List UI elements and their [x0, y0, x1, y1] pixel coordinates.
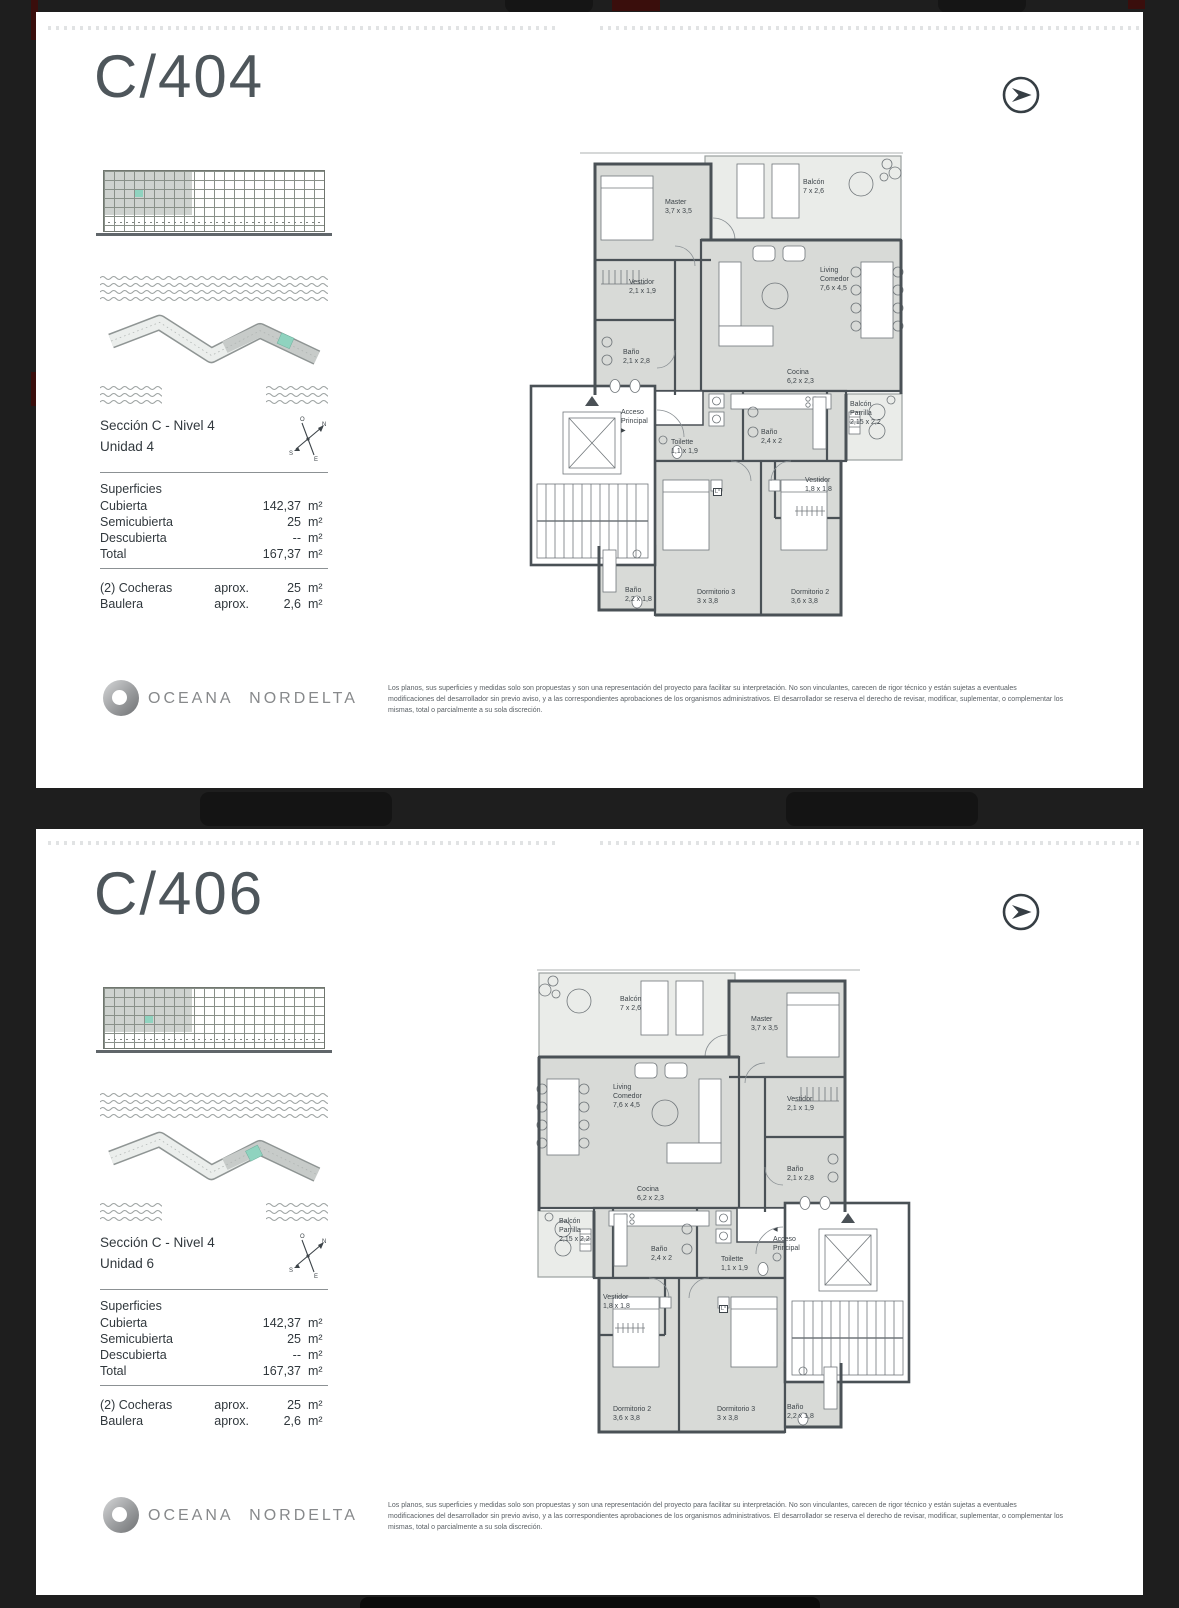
brand-name: OCEANA NORDELTA	[148, 1507, 358, 1525]
page-stack-tab[interactable]	[786, 792, 978, 826]
room-dims: 3,7 x 3,5	[665, 207, 692, 216]
room-label-cocina: Cocina6,2 x 2,3	[637, 1185, 664, 1203]
section-unit: Unidad 6	[100, 1253, 215, 1274]
room-name: Master	[751, 1015, 778, 1024]
room-dims: 1,1 x 1,9	[671, 447, 698, 456]
room-dims: 2,1 x 1,9	[629, 287, 656, 296]
room-name: Baño	[625, 586, 652, 595]
extras-row: Bauleraaprox.2,6m²	[100, 597, 328, 612]
room-dims: 2,2 x 1,8	[625, 595, 652, 604]
room-label-toilette: Toilette1,1 x 1,9	[721, 1255, 748, 1273]
room-dims: 2,2 x 1,8	[787, 1412, 814, 1421]
room-dims: 6,2 x 2,3	[787, 377, 814, 386]
room-dims: 7 x 2,6	[803, 187, 824, 196]
room-name: Cocina	[787, 368, 814, 377]
room-label-bano3: Baño2,2 x 1,8	[787, 1403, 814, 1421]
room-label-dorm2: Dormitorio 23,6 x 3,8	[613, 1405, 651, 1423]
room-label-bano3: Baño2,2 x 1,8	[625, 586, 652, 604]
building-elevation-diagram	[103, 987, 325, 1049]
room-label-dorm3: Dormitorio 33 x 3,8	[697, 588, 735, 606]
superficies-row: Cubierta142,37m²	[100, 499, 328, 514]
laundry-label: L°	[719, 1305, 728, 1313]
divider	[100, 472, 328, 473]
room-dims: 2,4 x 2	[761, 437, 782, 446]
stacked-page-edge	[600, 26, 1140, 30]
water-waves-small	[100, 1202, 162, 1224]
room-dims: 2,1 x 2,8	[623, 357, 650, 366]
small-waves-row	[100, 385, 328, 407]
room-label-parrilla: Balcón Parrilla2,15 x 2,2	[850, 400, 882, 427]
room-label-cocina: Cocina6,2 x 2,3	[787, 368, 814, 386]
water-waves-graphic	[100, 1092, 328, 1120]
flipbook-viewer: C/404	[0, 0, 1179, 1608]
page-c404: C/404	[36, 12, 1143, 788]
room-label-toilette: Toilette1,1 x 1,9	[671, 438, 698, 456]
page-title: C/404	[94, 42, 264, 111]
room-name: Vestidor	[603, 1293, 630, 1302]
section-level: Sección C - Nivel 4	[100, 1232, 215, 1253]
section-level: Sección C - Nivel 4	[100, 415, 215, 436]
room-dims: 2,15 x 2,2	[559, 1235, 591, 1244]
room-label-master: Master3,7 x 3,5	[751, 1015, 778, 1033]
extras-row: Bauleraaprox.2,6m²	[100, 1414, 328, 1429]
room-name: Baño	[787, 1403, 814, 1412]
building-elevation-diagram	[103, 170, 325, 232]
room-name: Baño	[623, 348, 650, 357]
room-label-dorm3: Dormitorio 33 x 3,8	[717, 1405, 755, 1423]
acceso-arrow-icon: ◀	[773, 1227, 778, 1233]
water-waves-small	[266, 385, 328, 407]
superficies-row-total: Total167,37m²	[100, 547, 328, 562]
room-dims: 3,7 x 3,5	[751, 1024, 778, 1033]
room-dims: 3 x 3,8	[697, 597, 735, 606]
room-label-acceso: Acceso Principal▶	[621, 408, 665, 436]
brand-name: OCEANA NORDELTA	[148, 690, 358, 708]
water-waves-small	[266, 1202, 328, 1224]
arrow-right-icon	[1000, 891, 1042, 933]
page-title: C/406	[94, 859, 264, 928]
room-name: Balcón	[620, 995, 641, 1004]
room-name: Vestidor	[629, 278, 656, 287]
superficies-row: Semicubierta25m²	[100, 1332, 328, 1347]
superficies-row: Cubierta142,37m²	[100, 1316, 328, 1331]
floor-plan: Master3,7 x 3,5 Balcón7 x 2,6 Living Com…	[525, 150, 915, 630]
room-dims: 6,2 x 2,3	[637, 1194, 664, 1203]
svg-text:N: N	[322, 1239, 326, 1245]
room-name: Dormitorio 3	[697, 588, 735, 597]
room-label-vestidor2: Vestidor1,8 x 1,8	[805, 476, 832, 494]
room-label-balcon: Balcón7 x 2,6	[803, 178, 824, 196]
svg-text:E: E	[314, 1274, 318, 1278]
superficies-row: Semicubierta25m²	[100, 515, 328, 530]
section-info: Sección C - Nivel 4 Unidad 4	[100, 415, 215, 461]
room-dims: 2,15 x 2,2	[850, 418, 882, 427]
svg-text:E: E	[314, 457, 318, 461]
room-dims: 3,6 x 3,8	[791, 597, 829, 606]
room-dims: 2,4 x 2	[651, 1254, 672, 1263]
room-name: Baño	[761, 428, 782, 437]
water-waves-graphic	[100, 275, 328, 303]
divider	[100, 568, 328, 569]
compass-icon: O N S E	[288, 1232, 328, 1278]
acceso-arrow-icon: ▶	[621, 428, 626, 434]
superficies-row: Descubierta--m²	[100, 531, 328, 546]
room-dims: 3,6 x 3,8	[613, 1414, 651, 1423]
site-plan-serpentine	[100, 1127, 328, 1187]
next-page-button[interactable]	[1000, 891, 1042, 933]
room-name: Dormitorio 3	[717, 1405, 755, 1414]
svg-text:S: S	[289, 1268, 293, 1274]
room-dims: 2,1 x 2,8	[787, 1174, 814, 1183]
site-plan-serpentine	[100, 310, 328, 370]
room-label-living: Living Comedor7,6 x 4,5	[613, 1083, 657, 1110]
svg-text:O: O	[300, 1234, 305, 1240]
room-name: Acceso Principal	[773, 1235, 817, 1253]
compass-icon: O N S E	[288, 415, 328, 461]
oceana-logo-icon	[103, 680, 139, 716]
room-name: Balcón Parrilla	[850, 400, 882, 418]
page-stack-tab[interactable]	[200, 792, 392, 826]
superficies-heading: Superficies	[100, 482, 328, 497]
water-waves-small	[100, 385, 162, 407]
room-name: Living Comedor	[820, 266, 864, 284]
page-c406: C/406	[36, 829, 1143, 1605]
stacked-page-edge	[600, 841, 1140, 845]
small-waves-row	[100, 1202, 328, 1224]
room-name: Balcón Parrilla	[559, 1217, 591, 1235]
room-name: Vestidor	[805, 476, 832, 485]
room-label-bano2: Baño2,4 x 2	[651, 1245, 672, 1263]
stacked-page-edge	[48, 841, 558, 845]
extras-row: (2) Cocherasaprox.25m²	[100, 1398, 328, 1413]
divider	[100, 1385, 328, 1386]
room-name: Toilette	[671, 438, 698, 447]
room-label-dorm2: Dormitorio 23,6 x 3,8	[791, 588, 829, 606]
floor-plan-drawing	[525, 150, 915, 630]
section-info: Sección C - Nivel 4 Unidad 6	[100, 1232, 215, 1278]
room-dims: 7,6 x 4,5	[820, 284, 864, 293]
room-dims: 1,1 x 1,9	[721, 1264, 748, 1273]
superficies-heading: Superficies	[100, 1299, 328, 1314]
room-label-acceso: ◀Acceso Principal	[773, 1225, 817, 1253]
room-name: Living Comedor	[613, 1083, 657, 1101]
room-name: Baño	[651, 1245, 672, 1254]
room-dims: 7,6 x 4,5	[613, 1101, 657, 1110]
room-label-vestidor: Vestidor2,1 x 1,9	[629, 278, 656, 296]
floor-plan: Balcón7 x 2,6 Master3,7 x 3,5 Living Com…	[525, 967, 915, 1447]
floor-plan-drawing	[525, 967, 915, 1447]
room-dims: 2,1 x 1,9	[787, 1104, 814, 1113]
stacked-page-edge	[48, 26, 558, 30]
superficies-row: Descubierta--m²	[100, 1348, 328, 1363]
divider	[100, 1289, 328, 1290]
superficies-row-total: Total167,37m²	[100, 1364, 328, 1379]
unit-info-sidebar: Sección C - Nivel 4 Unidad 6 O N S E	[100, 987, 328, 1447]
room-name: Balcón	[803, 178, 824, 187]
extras-row: (2) Cocherasaprox.25m²	[100, 581, 328, 596]
legal-disclaimer: Los planos, sus superficies y medidas so…	[388, 684, 1064, 717]
room-dims: 1,8 x 1,8	[805, 485, 832, 494]
svg-text:N: N	[322, 422, 326, 428]
room-name: Master	[665, 198, 692, 207]
page-edge-red-top-center	[612, 0, 660, 11]
laundry-label: L°	[713, 488, 722, 496]
room-name: Dormitorio 2	[791, 588, 829, 597]
svg-text:S: S	[289, 451, 293, 457]
viewer-page-handle[interactable]	[360, 1597, 820, 1608]
oceana-logo-icon	[103, 1497, 139, 1533]
room-name: Cocina	[637, 1185, 664, 1194]
room-name: Vestidor	[787, 1095, 814, 1104]
unit-info-sidebar: Sección C - Nivel 4 Unidad 4 O N S E	[100, 170, 328, 630]
arrow-right-icon	[1000, 74, 1042, 116]
room-label-bano-master: Baño2,1 x 2,8	[623, 348, 650, 366]
room-label-bano-master: Baño2,1 x 2,8	[787, 1165, 814, 1183]
room-dims: 3 x 3,8	[717, 1414, 755, 1423]
section-unit: Unidad 4	[100, 436, 215, 457]
svg-text:O: O	[300, 417, 305, 423]
room-label-balcon: Balcón7 x 2,6	[620, 995, 641, 1013]
room-name: Dormitorio 2	[613, 1405, 651, 1414]
room-name: Baño	[787, 1165, 814, 1174]
page-edge-red-top-right	[1128, 0, 1145, 9]
room-label-bano2: Baño2,4 x 2	[761, 428, 782, 446]
room-dims: 7 x 2,6	[620, 1004, 641, 1013]
room-label-vestidor2: Vestidor1,8 x 1,8	[603, 1293, 630, 1311]
next-page-button[interactable]	[1000, 74, 1042, 116]
room-label-vestidor: Vestidor2,1 x 1,9	[787, 1095, 814, 1113]
room-name: Acceso Principal	[621, 408, 665, 426]
room-name: Toilette	[721, 1255, 748, 1264]
room-label-master: Master3,7 x 3,5	[665, 198, 692, 216]
room-label-parrilla: Balcón Parrilla2,15 x 2,2	[559, 1217, 591, 1244]
room-label-living: Living Comedor7,6 x 4,5	[820, 266, 864, 293]
legal-disclaimer: Los planos, sus superficies y medidas so…	[388, 1501, 1064, 1534]
room-dims: 1,8 x 1,8	[603, 1302, 630, 1311]
